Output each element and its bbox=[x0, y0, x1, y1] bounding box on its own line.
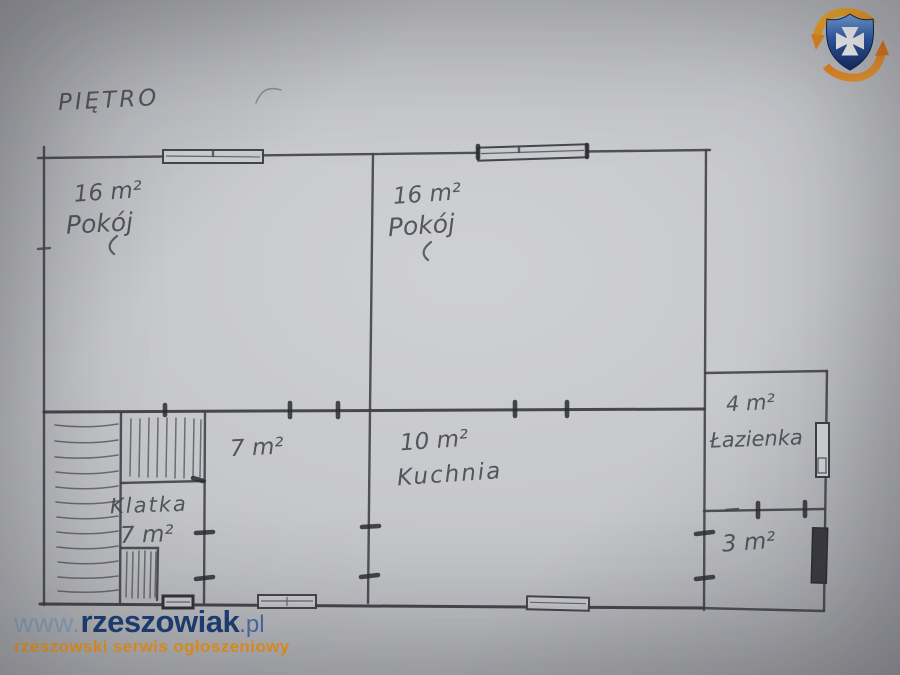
watermark-tagline: rzeszowski serwis ogłoszeniowy bbox=[14, 638, 290, 655]
room1-name: Pokój bbox=[65, 207, 134, 239]
rzeszowiak-shield-logo-icon bbox=[810, 4, 890, 88]
room2-area: 16 m² bbox=[392, 179, 462, 210]
window-top-right bbox=[478, 144, 587, 160]
floor-label: PIĘTRO bbox=[57, 85, 160, 116]
watermark-url-suffix: .pl bbox=[239, 613, 264, 637]
floor-plan-drawing: PIĘTRO 16 m² Pokój 16 m² Pokój 7 m² 10 m… bbox=[0, 0, 900, 675]
watermark-brand: rzeszowiak bbox=[81, 606, 240, 637]
door-dark-3m bbox=[811, 528, 827, 583]
kitchen-name: Kuchnia bbox=[396, 458, 503, 491]
pen-flourishes bbox=[110, 89, 431, 260]
bathroom-name: Łazienka bbox=[709, 425, 804, 452]
room3-area: 7 m² bbox=[229, 434, 284, 463]
photo-of-floor-plan: PIĘTRO 16 m² Pokój 16 m² Pokój 7 m² 10 m… bbox=[0, 0, 900, 675]
room1-area: 16 m² bbox=[73, 177, 143, 208]
window-bottom-3 bbox=[527, 596, 589, 611]
staircase-name: Klatka bbox=[110, 492, 189, 519]
watermark-url-prefix: www. bbox=[14, 610, 81, 637]
site-watermark: www.rzeszowiak.pl rzeszowski serwis ogło… bbox=[14, 606, 290, 655]
kitchen-area: 10 m² bbox=[399, 426, 469, 457]
window-bathroom bbox=[816, 423, 829, 477]
staircase-area: 7 m² bbox=[120, 521, 174, 549]
bathroom-area: 4 m² bbox=[725, 390, 776, 417]
watermark-url: www.rzeszowiak.pl bbox=[14, 606, 290, 637]
room2-name: Pokój bbox=[387, 209, 456, 243]
room6-area: 3 m² bbox=[721, 528, 776, 558]
